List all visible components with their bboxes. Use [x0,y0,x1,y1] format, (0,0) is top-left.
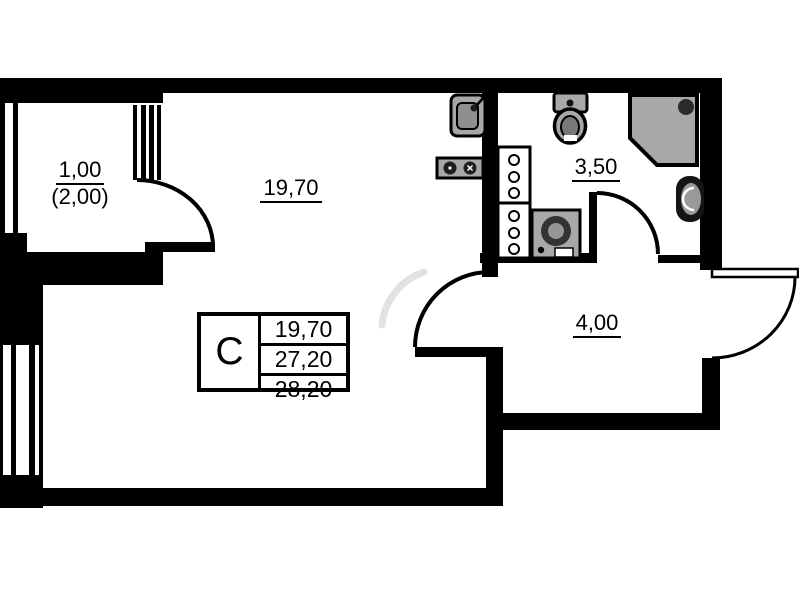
erased-arc-artifact [382,272,424,325]
apartment-type-cell: C [201,316,261,388]
room-label-bathroom: 3,50 [546,155,646,182]
balcony-area-alt: (2,00) [51,184,108,209]
washbasin-symbol [676,176,704,222]
vent-shaft-symbol [498,147,530,203]
room-label-balcony: 1,00 (2,00) [30,158,130,209]
washing-machine-symbol [532,210,580,258]
table-row: 27,20 [261,343,346,373]
room-label-living: 19,70 [241,176,341,203]
door-arc [415,272,490,347]
entrance-door [712,269,798,358]
living-area: 19,70 [260,176,321,203]
kitchen-sink-symbol [451,95,485,136]
vent-shaft-symbol [498,203,530,258]
table-row: 28,20 [261,373,346,403]
apartment-areas-column: 19,70 27,20 28,20 [261,316,346,388]
floor-plan: 1,00 (2,00) 19,70 3,50 4,00 C 19,70 27,2… [0,0,799,600]
table-row: 19,70 [261,316,346,343]
toilet-symbol [554,93,587,143]
room-label-hallway: 4,00 [547,311,647,338]
balcony-area: 1,00 [56,158,105,185]
door-arc [589,192,658,255]
apartment-info-table: C 19,70 27,20 28,20 [197,312,350,392]
stove-symbol [437,158,483,178]
plan-symbols-layer [0,0,799,600]
hallway-area: 4,00 [573,311,622,338]
bathroom-area: 3,50 [572,155,621,182]
apartment-type-label: C [215,330,243,374]
door-arc [137,180,213,247]
